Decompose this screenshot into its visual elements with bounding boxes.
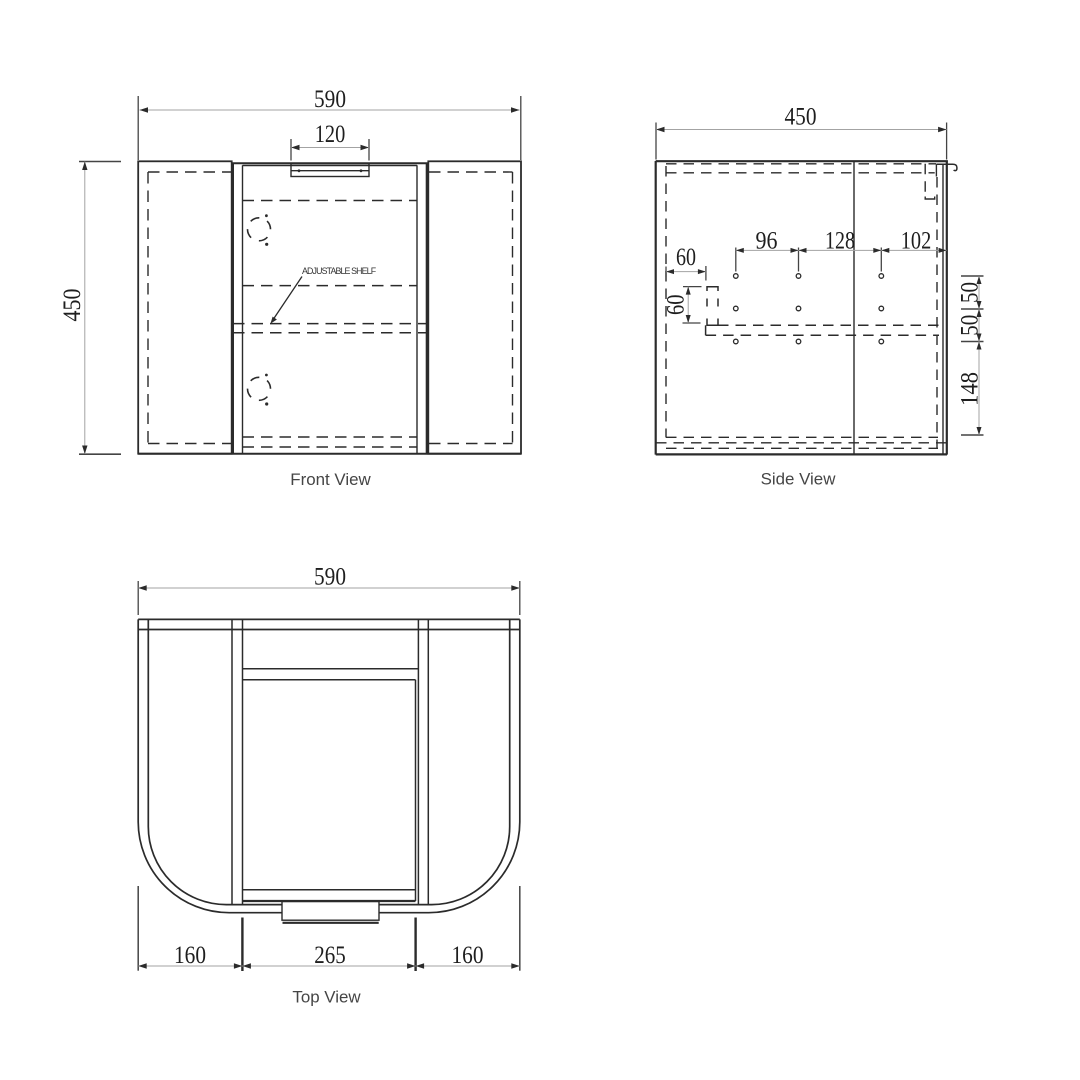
svg-text:96: 96 [756,228,778,255]
svg-text:Side View: Side View [761,470,837,489]
svg-text:50: 50 [957,315,984,336]
svg-text:128: 128 [825,228,855,255]
svg-text:590: 590 [314,86,346,113]
svg-text:Front View: Front View [290,470,371,489]
svg-text:160: 160 [174,942,206,969]
svg-text:148: 148 [957,372,984,406]
svg-text:ADJUSTABLE SHELF: ADJUSTABLE SHELF [302,266,377,276]
svg-text:450: 450 [59,289,86,322]
svg-text:590: 590 [314,564,346,591]
svg-text:120: 120 [315,121,346,148]
svg-text:60: 60 [663,295,690,316]
svg-text:265: 265 [314,942,346,969]
svg-text:160: 160 [452,942,484,969]
svg-text:Top View: Top View [292,987,361,1006]
svg-text:450: 450 [785,104,817,131]
svg-text:102: 102 [901,228,932,255]
svg-text:50: 50 [957,282,984,303]
svg-text:60: 60 [676,244,696,271]
